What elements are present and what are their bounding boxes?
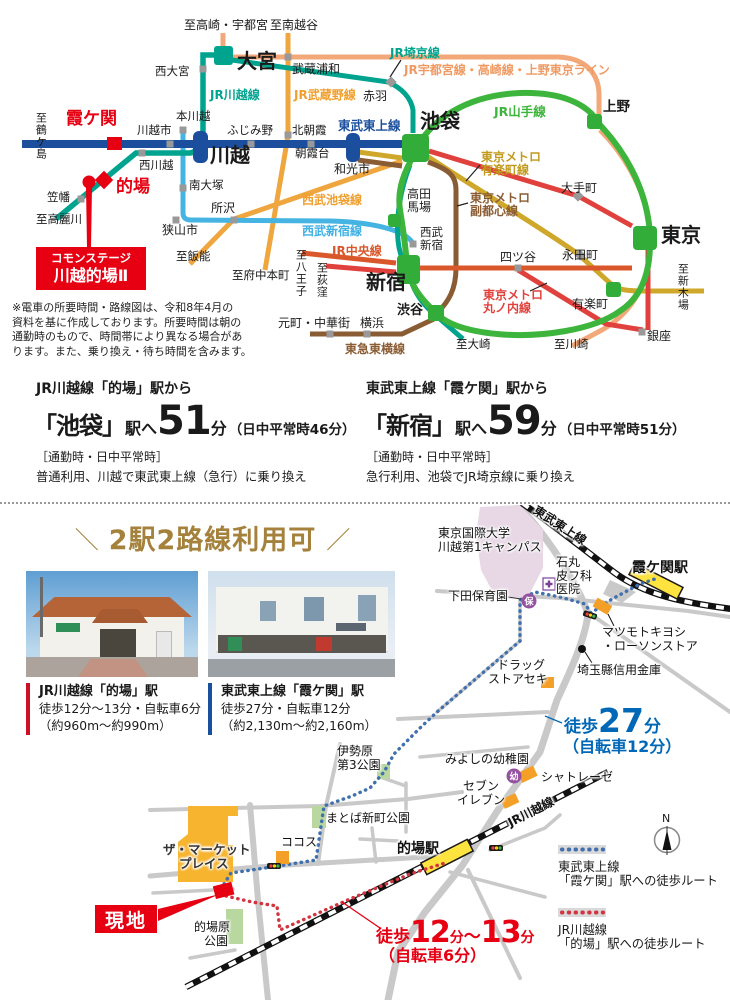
map-seven-eleven-label: セブン イレブン [463,780,505,807]
disclaimer-note: ※電車の所要時間・路線図は、令和8年4月の 資料を基に作成しております。所要時間… [12,301,252,359]
station-shibuya: 渋谷 [397,304,423,319]
access-from-matoba: JR川越線「的場」駅から [36,378,356,398]
station-ginza: 銀座 [647,330,671,343]
legend-red-route: JR川越線 「的場」駅への徒歩ルート [558,923,706,951]
minutes-59: 59 [487,401,541,441]
station-musashi-urawa: 武蔵浦和 [292,63,340,76]
access-block-shinjuku: 東武東上線「霞ケ関」駅から 「新宿」 駅へ 59 分 （日中平常時51分） ［通… [366,378,686,485]
station-ueno: 上野 [603,100,630,115]
section-divider [0,502,730,504]
station-asakadai: 朝霞台 [295,147,330,160]
dest-hanno: 至飯能 [176,250,211,263]
hoikuen-icon: 保 [522,594,537,609]
station-hon-kawagoe: 本川越 [176,110,211,123]
map-ishimaru-clinic-label: 石丸 皮フ科 医院 [556,556,592,597]
dest-shinjuku-big: 「新宿」 [363,406,455,441]
dest-kawasaki: 至川崎 [554,338,589,351]
minutes-51: 51 [157,401,211,441]
tokyo-station-shape [633,226,657,250]
station-kawagoe: 川越 [210,144,250,166]
station-kasahata: 笠幡 [47,191,70,204]
station-akabane: 赤羽 [363,90,387,103]
station-ikebukuro: 池袋 [420,110,460,132]
map-market-place-label: ザ・マーケット プレイス [163,843,251,871]
kasumigaseki-station-shape [107,137,122,150]
map-shimoda-nursery-label: 下田保育園 [448,590,508,604]
label-seibu-ikebukuro-line: 西武池袋線 [302,194,362,207]
station-nishi-kawagoe: 西川越 [139,159,174,172]
dest-hachioji: 至八王子 [294,249,306,297]
red-leader-line [342,902,380,928]
traffic-light-icons [267,610,598,869]
label-metro-fukutoshin: 東京メトロ 副都心線 [470,192,530,219]
station-sayamashi: 狭山市 [162,224,198,237]
label-metro-yurakucho: 東京メトロ 有楽町線 [481,151,541,178]
station-omiya: 大宮 [237,50,277,72]
label-jr-musashino-line: JR武蔵野線 [294,89,356,102]
daytime-51: （日中平常時51分） [559,418,686,438]
label-jr-chuo-line: JR中央線 [332,245,382,258]
daytime-46: （日中平常時46分） [229,418,356,438]
map-isehara-park-label: 伊勢原 第3公園 [337,745,381,772]
station-kita-asaka: 北朝霞 [292,124,327,137]
compass-n-label: N [662,813,670,825]
label-seibu-shinjuku-line: 西武新宿線 [302,225,362,238]
map-matoba-station-label: 的場駅 [397,842,439,858]
svg-text:幼: 幼 [509,771,518,783]
map-matobahara-park-label: 的場原 公園 [194,921,230,948]
station-nagatacho: 永田町 [562,249,598,262]
dest-fuchu: 至府中本町 [232,269,290,282]
cocos-shape [276,851,289,864]
map-shinmachi-park-label: まとば新町公園 [326,812,410,826]
label-tobu-tojo-line: 東武東上線 [338,119,401,133]
site-pointer [86,187,92,247]
wakoshi-station-shape [346,133,360,162]
map-miyoshino-label: みよしの幼稚園 [445,753,529,767]
property-callout: コモンステージ 川越的場Ⅱ [36,247,146,290]
dest-komagawa: 至高麗川 [36,213,82,226]
access-block-ikebukuro: JR川越線「的場」駅から 「池袋」 駅へ 51 分 （日中平常時46分） ［通勤… [36,378,356,485]
site-location-dot [83,176,96,189]
flyer-page: 至高崎・宇都宮 至南越谷 西大宮 大宮 武蔵浦和 JR川越線 JR武蔵野線 至鶴… [0,0,730,1000]
dest-tsurugashima: 至鶴ケ島 [34,112,46,160]
omiya-station-shape [214,46,233,65]
station-tokyo: 東京 [661,224,701,246]
label-jr-kawagoe-line: JR川越線 [210,89,260,102]
map-university-label: 東京国際大学 川越第1キャンパス [438,527,542,554]
station-wakoshi: 和光市 [334,163,370,176]
site-callout-genchi: 現地 [95,905,157,933]
bike-12min-label: （自転車12分） [563,738,681,756]
station-kasumigaseki: 霞ケ関 [66,110,117,129]
map-drugstore-seki-label: ドラッグ ストアセキ [497,659,548,686]
station-minami-otsuka: 南大塚 [189,179,224,192]
station-nishi-omiya: 西大宮 [155,65,190,78]
walk-27min-label: 徒歩 27 分 [564,704,661,737]
property-name-line1: コモンステージ [36,252,146,266]
station-matoba: 的場 [116,178,150,197]
label-tokyu-toyoko-line: 東急東横線 [345,343,405,356]
map-chateraise-label: シャトレーゼ [541,771,613,785]
takadanobaba-station-shape [388,214,401,227]
label-jr-yamanote-line: JR山手線 [494,105,546,119]
ikebukuro-station-shape [402,134,429,162]
kawagoe-station-shape [193,131,208,163]
station-seibu-shinjuku: 西武 新宿 [420,226,443,252]
station-yotsuya: 四ツ谷 [500,251,536,264]
property-name-line2: 川越的場Ⅱ [36,266,146,285]
station-yurakucho: 有楽町 [572,298,608,311]
yochien-icon: 幼 [507,769,522,784]
label-jr-saikyo-line: JR埼京線 [390,47,440,60]
yurakucho-station-shape [606,282,621,297]
legend-blue-route: 東武東上線 「霞ケ関」駅への徒歩ルート [558,860,718,888]
map-cocos-label: ココス [281,836,317,850]
dest-ogikubo: 至荻窪 [315,262,327,298]
compass-icon [655,826,680,855]
ueno-station-shape [587,114,602,129]
map-kasumigaseki-station-label: 霞ケ関駅 [632,561,688,577]
shinkin-dot [578,645,586,653]
dest-takasaki: 至高崎・宇都宮 [184,19,268,32]
access-from-kasumigaseki: 東武東上線「霞ケ関」駅から [366,378,686,398]
map-matsumotokiyoshi-label: マツモトキヨシ ・ローソンストア [602,626,698,653]
bike-6min-label: （自転車6分） [379,947,486,965]
site-leader-wedge [158,894,220,921]
station-motomachi: 元町・中華街 [278,317,350,330]
label-metro-marunouchi: 東京メトロ 丸ノ内線 [483,289,543,316]
dest-ikebukuro-big: 「池袋」 [33,406,125,441]
walk-12-13min-label: 徒歩 12 分 〜 13 分 [376,918,535,948]
station-fujimino: ふじみ野 [227,124,273,137]
dest-shin-kiba: 至新木場 [676,263,688,311]
shibuya-station-shape [428,305,444,321]
svg-text:保: 保 [523,596,534,608]
station-kawagoeshi: 川越市 [137,124,172,137]
station-yokohama: 横浜 [360,317,384,330]
clinic-cross-icon [543,578,555,590]
map-shinkin-bank-label: 埼玉縣信用金庫 [577,664,661,678]
station-takadanobaba: 高田 馬場 [407,188,431,215]
dest-minami-koshigaya: 至南越谷 [270,19,318,32]
label-jr-utsunomiya-line: JR宇都宮線・高崎線・上野東京ライン [404,64,610,77]
station-shinjuku: 新宿 [366,271,406,293]
shinkin-leader [585,652,592,663]
station-otemachi: 大手町 [561,182,597,195]
dest-osaki: 至大崎 [456,338,491,351]
station-tokorozawa: 所沢 [211,202,235,215]
